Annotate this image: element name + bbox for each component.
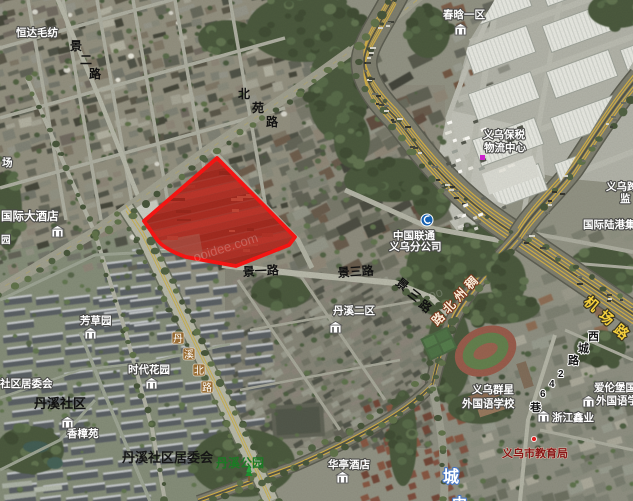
svg-text:苑: 苑 xyxy=(252,100,264,115)
svg-text:爱伦堡国: 爱伦堡国 xyxy=(594,381,633,394)
svg-text:芳草园: 芳草园 xyxy=(80,314,112,327)
svg-text:4: 4 xyxy=(549,379,555,390)
svg-text:丹: 丹 xyxy=(173,333,183,345)
svg-text:路: 路 xyxy=(266,114,279,129)
svg-text:场: 场 xyxy=(2,156,13,169)
svg-text:景: 景 xyxy=(70,39,82,53)
svg-text:中: 中 xyxy=(452,495,467,501)
svg-text:物流中心: 物流中心 xyxy=(484,141,526,154)
svg-text:2: 2 xyxy=(558,369,564,380)
svg-text:华亭酒店: 华亭酒店 xyxy=(328,458,370,471)
svg-text:城: 城 xyxy=(443,468,459,486)
svg-text:6: 6 xyxy=(540,389,546,400)
svg-text:国际陆港集: 国际陆港集 xyxy=(583,218,633,231)
svg-text:北: 北 xyxy=(238,86,250,101)
svg-text:义乌跨: 义乌跨 xyxy=(605,180,633,193)
svg-text:路: 路 xyxy=(568,353,580,367)
svg-text:路: 路 xyxy=(89,66,102,81)
svg-text:义乌保税: 义乌保税 xyxy=(482,128,525,141)
svg-text:义乌群星: 义乌群星 xyxy=(471,383,514,396)
svg-text:时代花园: 时代花园 xyxy=(128,363,170,376)
svg-text:义乌分公司: 义乌分公司 xyxy=(388,240,442,253)
svg-text:外国语学校: 外国语学校 xyxy=(461,397,515,410)
svg-text:园: 园 xyxy=(1,235,11,246)
svg-text:路: 路 xyxy=(202,381,212,394)
svg-text:城: 城 xyxy=(578,341,589,355)
svg-text:社区居委会: 社区居委会 xyxy=(0,377,53,390)
svg-text:香樟苑: 香樟苑 xyxy=(66,427,99,440)
svg-text:外国语学: 外国语学 xyxy=(595,394,633,407)
svg-text:恒达毛纺: 恒达毛纺 xyxy=(16,26,58,39)
svg-text:北: 北 xyxy=(194,365,204,377)
svg-text:丹溪二区: 丹溪二区 xyxy=(333,304,375,317)
svg-text:溪: 溪 xyxy=(184,349,194,361)
svg-text:丹溪社区居委会: 丹溪社区居委会 xyxy=(122,450,214,465)
svg-text:西: 西 xyxy=(588,330,599,343)
svg-text:国际大酒店: 国际大酒店 xyxy=(1,209,59,223)
svg-text:景三路: 景三路 xyxy=(337,262,375,280)
svg-text:丹溪社区: 丹溪社区 xyxy=(34,396,86,411)
svg-text:丹溪公园: 丹溪公园 xyxy=(216,455,264,470)
svg-text:二: 二 xyxy=(80,53,92,67)
svg-text:浙江鑫业: 浙江鑫业 xyxy=(552,411,594,424)
svg-text:春晗一区: 春晗一区 xyxy=(443,8,485,21)
svg-text:巷: 巷 xyxy=(529,400,542,414)
svg-text:监: 监 xyxy=(620,192,631,205)
svg-text:景一路: 景一路 xyxy=(242,262,280,279)
svg-text:义乌市教育局: 义乌市教育局 xyxy=(502,446,568,460)
